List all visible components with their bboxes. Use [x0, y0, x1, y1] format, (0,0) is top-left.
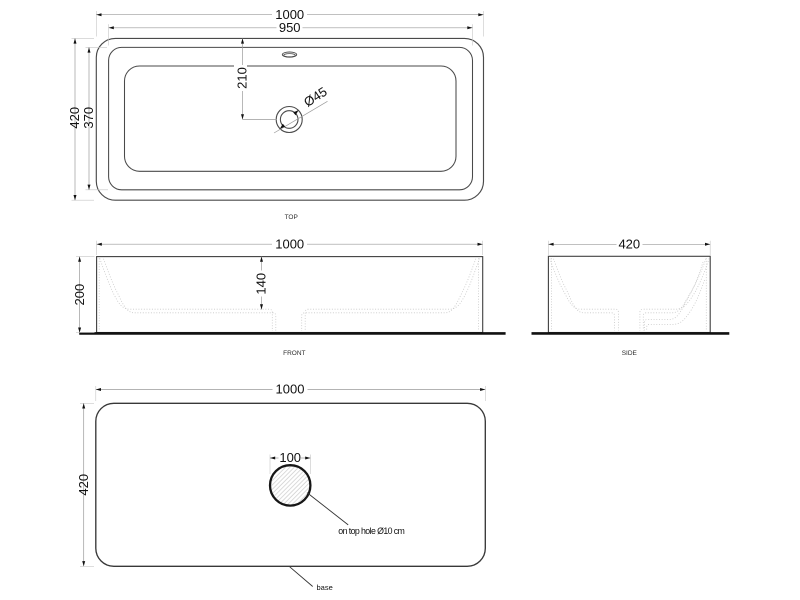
svg-text:370: 370	[81, 107, 96, 129]
svg-text:950: 950	[279, 20, 301, 35]
svg-text:200: 200	[72, 284, 87, 306]
svg-text:TOP: TOP	[285, 214, 298, 221]
svg-text:420: 420	[67, 107, 82, 129]
svg-text:420: 420	[618, 237, 640, 252]
svg-text:SIDE: SIDE	[622, 350, 638, 357]
svg-text:420: 420	[76, 474, 91, 496]
svg-text:100: 100	[279, 450, 301, 465]
svg-text:1000: 1000	[275, 236, 304, 251]
svg-text:base: base	[317, 583, 333, 592]
svg-text:210: 210	[235, 67, 250, 89]
svg-text:140: 140	[254, 273, 269, 295]
svg-text:on top hole Ø10 cm: on top hole Ø10 cm	[338, 526, 404, 536]
svg-text:1000: 1000	[276, 382, 305, 397]
svg-text:FRONT: FRONT	[283, 350, 305, 357]
